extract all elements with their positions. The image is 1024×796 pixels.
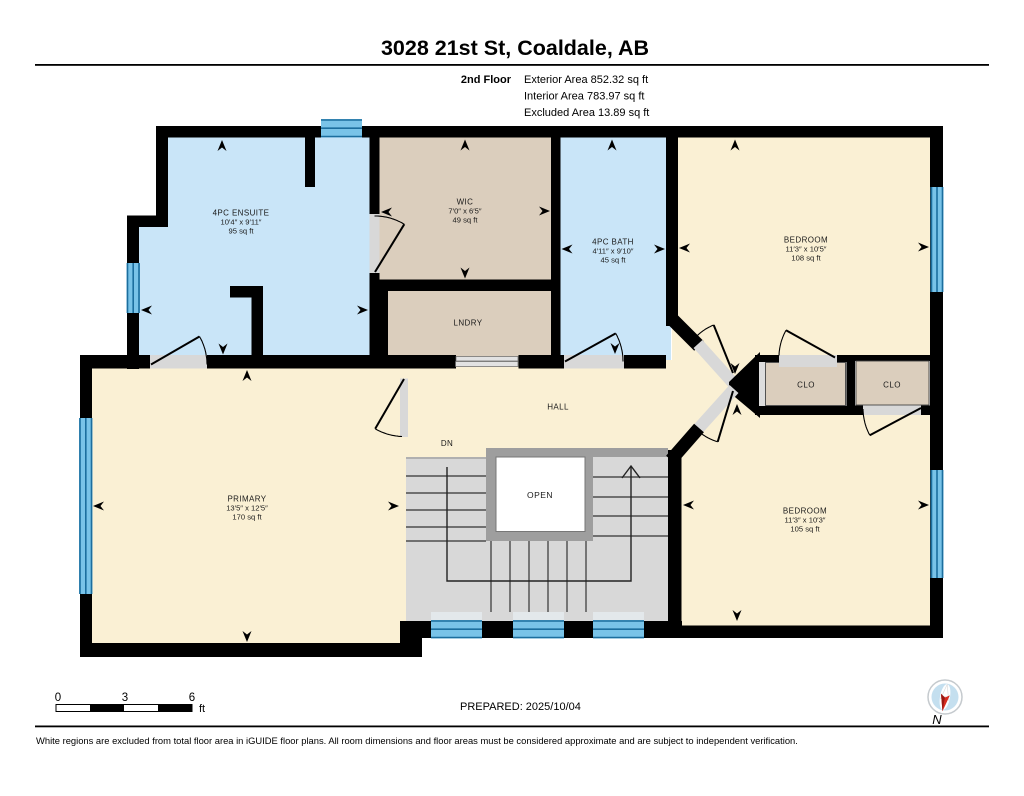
svg-text:105 sq ft: 105 sq ft	[790, 525, 820, 534]
svg-text:3028 21st St, Coaldale, AB: 3028 21st St, Coaldale, AB	[381, 36, 649, 60]
svg-text:BEDROOM: BEDROOM	[783, 507, 827, 516]
svg-text:3: 3	[122, 692, 128, 704]
svg-text:13′5″ x 12′5″: 13′5″ x 12′5″	[226, 504, 268, 513]
svg-text:N: N	[932, 712, 942, 727]
svg-text:BEDROOM: BEDROOM	[784, 236, 828, 245]
svg-text:Exterior Area 852.32 sq ft: Exterior Area 852.32 sq ft	[524, 74, 648, 86]
svg-text:CLO: CLO	[797, 381, 815, 390]
svg-text:11′3″ x 10′5″: 11′3″ x 10′5″	[785, 245, 826, 254]
svg-text:HALL: HALL	[547, 403, 569, 412]
svg-text:ft: ft	[199, 703, 205, 715]
svg-text:6: 6	[189, 692, 195, 704]
svg-text:OPEN: OPEN	[527, 490, 553, 500]
svg-text:WIC: WIC	[457, 198, 474, 207]
svg-text:4′11″ x 9′10″: 4′11″ x 9′10″	[592, 247, 633, 256]
svg-text:LNDRY: LNDRY	[454, 319, 483, 328]
svg-text:11′3″ x 10′3″: 11′3″ x 10′3″	[784, 516, 825, 525]
svg-text:White regions are excluded fro: White regions are excluded from total fl…	[36, 736, 798, 746]
svg-text:PRIMARY: PRIMARY	[227, 495, 266, 504]
svg-text:DN: DN	[441, 439, 453, 448]
svg-text:0: 0	[55, 692, 61, 704]
svg-text:4PC ENSUITE: 4PC ENSUITE	[213, 209, 270, 218]
svg-text:108 sq ft: 108 sq ft	[791, 254, 821, 263]
svg-text:PREPARED: 2025/10/04: PREPARED: 2025/10/04	[460, 701, 581, 713]
svg-text:Interior Area 783.97 sq ft: Interior Area 783.97 sq ft	[524, 91, 644, 103]
svg-text:10′4″ x 9′11″: 10′4″ x 9′11″	[220, 218, 261, 227]
svg-text:45 sq ft: 45 sq ft	[601, 256, 627, 265]
svg-text:2nd Floor: 2nd Floor	[461, 74, 512, 86]
svg-text:CLO: CLO	[883, 381, 901, 390]
svg-text:49 sq ft: 49 sq ft	[453, 216, 479, 225]
svg-text:95 sq ft: 95 sq ft	[229, 227, 255, 236]
svg-text:170 sq ft: 170 sq ft	[232, 513, 262, 522]
svg-text:Excluded Area 13.89 sq ft: Excluded Area 13.89 sq ft	[524, 107, 649, 119]
svg-text:7′0″ x 6′5″: 7′0″ x 6′5″	[448, 207, 481, 216]
svg-text:4PC BATH: 4PC BATH	[592, 238, 634, 247]
